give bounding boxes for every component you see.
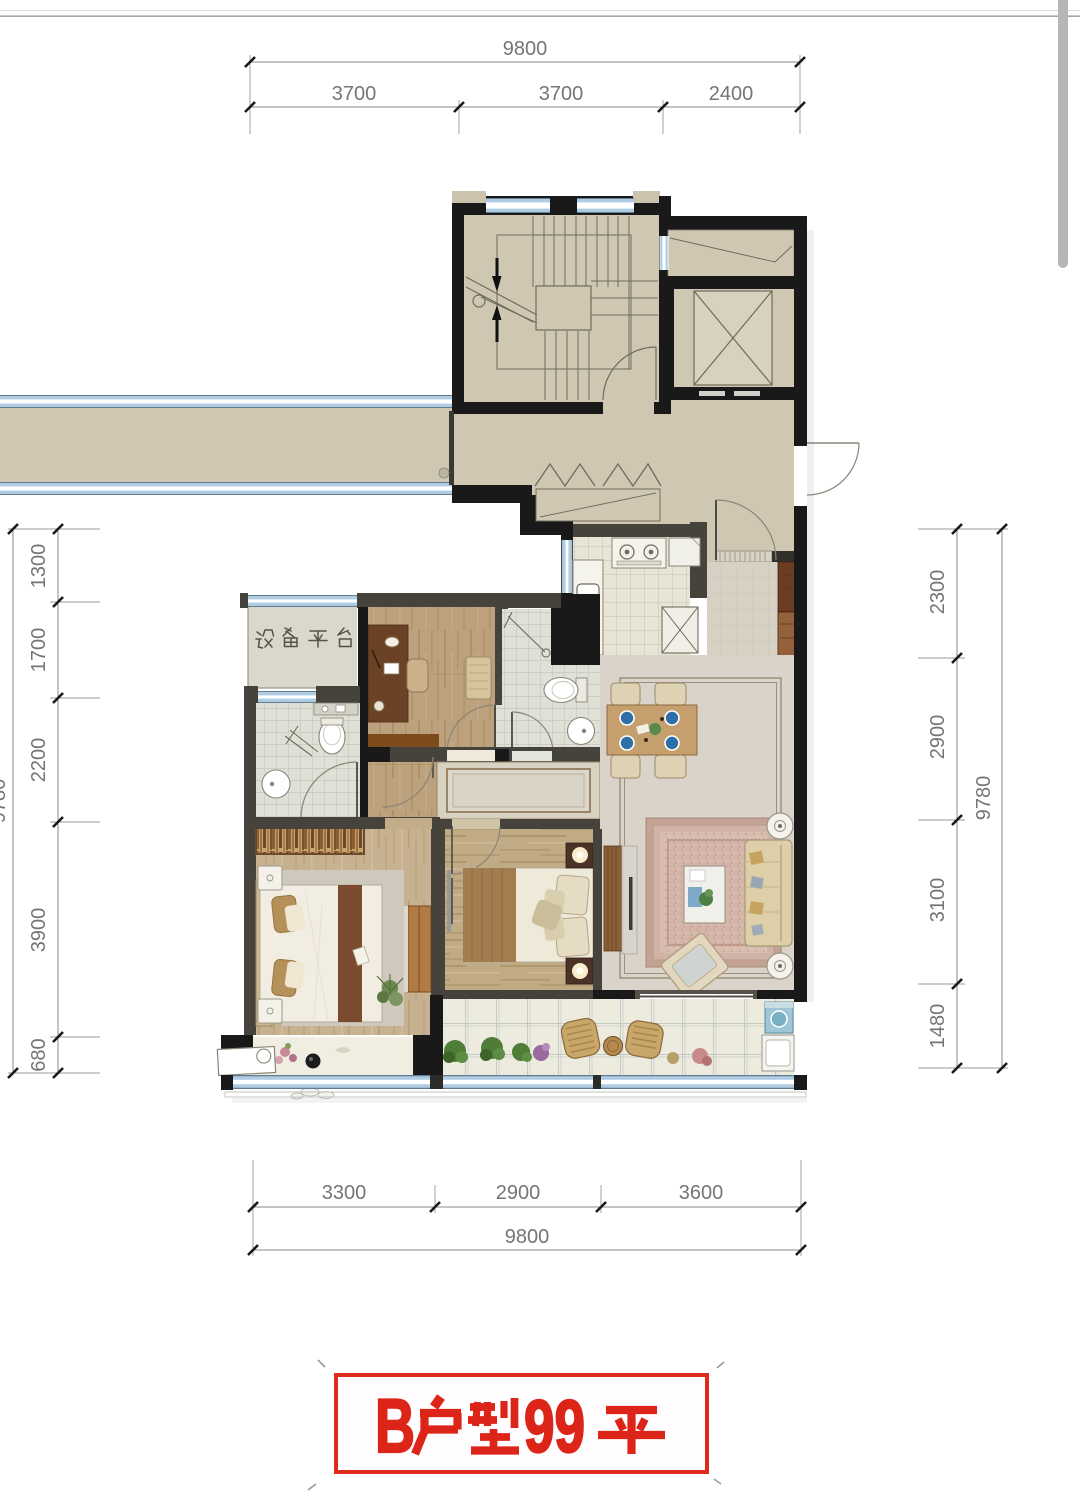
svg-text:99: 99: [524, 1385, 585, 1468]
svg-text:3700: 3700: [332, 83, 377, 105]
svg-text:B: B: [375, 1384, 415, 1469]
svg-text:3900: 3900: [28, 908, 50, 953]
svg-text:2900: 2900: [496, 1182, 541, 1204]
svg-text:9800: 9800: [503, 38, 548, 60]
svg-text:2300: 2300: [927, 570, 949, 615]
svg-text:680: 680: [28, 1038, 50, 1071]
svg-text:3100: 3100: [927, 878, 949, 923]
svg-text:9800: 9800: [505, 1226, 550, 1248]
svg-text:9780: 9780: [0, 779, 10, 824]
svg-text:2900: 2900: [927, 715, 949, 760]
svg-text:2200: 2200: [28, 738, 50, 783]
svg-text:3600: 3600: [679, 1182, 724, 1204]
svg-text:3700: 3700: [539, 83, 584, 105]
svg-text:3300: 3300: [322, 1182, 367, 1204]
svg-text:1300: 1300: [28, 544, 50, 589]
svg-text:1480: 1480: [927, 1004, 949, 1049]
svg-text:2400: 2400: [709, 83, 754, 105]
svg-text:1700: 1700: [28, 628, 50, 673]
svg-text:9780: 9780: [973, 776, 995, 821]
